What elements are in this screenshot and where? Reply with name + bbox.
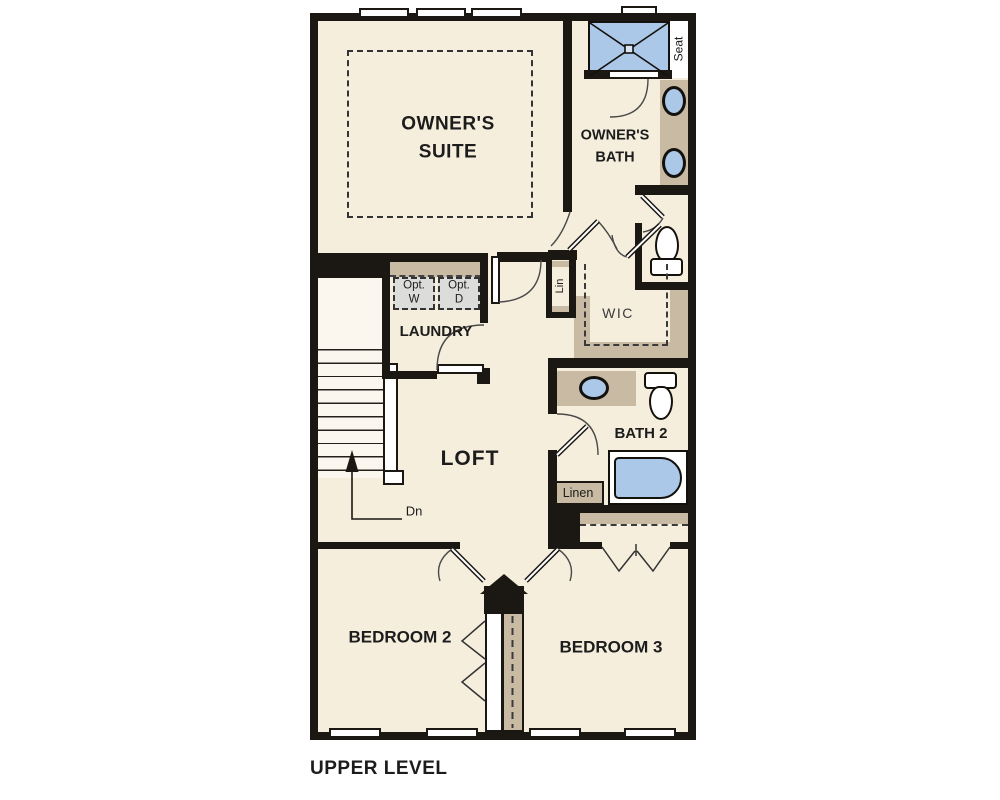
lin-shelf-top	[552, 261, 569, 267]
optional-dryer-label: Opt.D	[448, 279, 470, 308]
hall-door-leaf	[491, 256, 500, 304]
shower-wall-stub-left	[584, 70, 610, 79]
window-bottom-2	[426, 728, 478, 738]
vanity-sink-1	[662, 86, 686, 116]
stairs-down-label: Dn	[406, 503, 423, 522]
wall-hall-bath2-upper	[548, 358, 557, 414]
window-bottom-1	[329, 728, 381, 738]
wall-laundry-right	[480, 253, 488, 323]
laundry-door-leaf	[437, 364, 484, 374]
wall-suite-bottom-right	[497, 252, 548, 262]
lin-label: Lin	[553, 279, 569, 294]
shower-door	[608, 70, 660, 79]
shower-wall-stub-right	[658, 70, 672, 79]
window-bottom-3	[529, 728, 581, 738]
room-label-wic: WIC	[602, 303, 634, 323]
wall-lin-left	[546, 258, 552, 318]
shower-seat-label: Seat	[670, 37, 687, 62]
wall-left	[310, 13, 318, 740]
wall-laundry-top	[388, 253, 484, 262]
wall-suite-bath	[563, 13, 572, 212]
room-label-loft: LOFT	[441, 444, 500, 474]
wall-lin-right	[569, 258, 576, 318]
wall-hall-bath2-lower	[548, 450, 557, 513]
wall-wc-bottom	[635, 282, 688, 290]
room-label-bedroom2: BEDROOM 2	[349, 626, 452, 651]
wall-doorway-pentagon	[484, 586, 524, 614]
room-label-laundry: LAUNDRY	[400, 321, 473, 343]
stair-railing	[383, 363, 398, 485]
room-label-owners-bath: OWNER'S BATH	[581, 125, 650, 169]
room-label-bedroom3: BEDROOM 3	[560, 636, 663, 661]
window-bottom-4	[624, 728, 676, 738]
bathtub	[614, 457, 682, 499]
owners-toilet-bowl	[655, 226, 679, 262]
wic-shelf-right	[670, 290, 688, 364]
wall-wc-top	[635, 185, 688, 195]
bath2-sink	[579, 376, 609, 400]
wall-bedroom2-top	[318, 542, 460, 549]
room-label-bath2: BATH 2	[614, 423, 667, 445]
wall-wic-bath2	[548, 358, 688, 368]
page-title: UPPER LEVEL	[310, 758, 447, 780]
wall-wc-left	[635, 223, 642, 290]
wall-closet3-left	[560, 542, 602, 549]
bedroom3-closet-strip	[502, 611, 524, 732]
window-top-2	[416, 8, 466, 18]
wall-suite-stairs	[310, 253, 390, 278]
optional-washer-label: Opt.W	[403, 279, 425, 308]
vanity-sink-2	[662, 148, 686, 178]
wall-right	[688, 13, 696, 740]
linen-label: Linen	[563, 484, 594, 502]
stair-treads	[318, 337, 386, 471]
window-top-4	[621, 6, 657, 15]
laundry-counter	[390, 261, 481, 277]
window-top-1	[359, 8, 409, 18]
window-top-3	[471, 8, 522, 18]
stair-railing-end	[383, 470, 404, 485]
wall-closet3-right	[670, 542, 688, 549]
wall-laundry-left	[382, 253, 390, 379]
bedroom3-closet-rod	[580, 524, 688, 526]
wall-laundry-bottom	[388, 371, 437, 379]
floor-plan: Seat Lin Linen Opt.W Opt.D	[0, 0, 1000, 800]
bedroom2-closet-strip	[485, 611, 503, 732]
room-label-owners-suite: OWNER'S SUITE	[401, 110, 495, 165]
